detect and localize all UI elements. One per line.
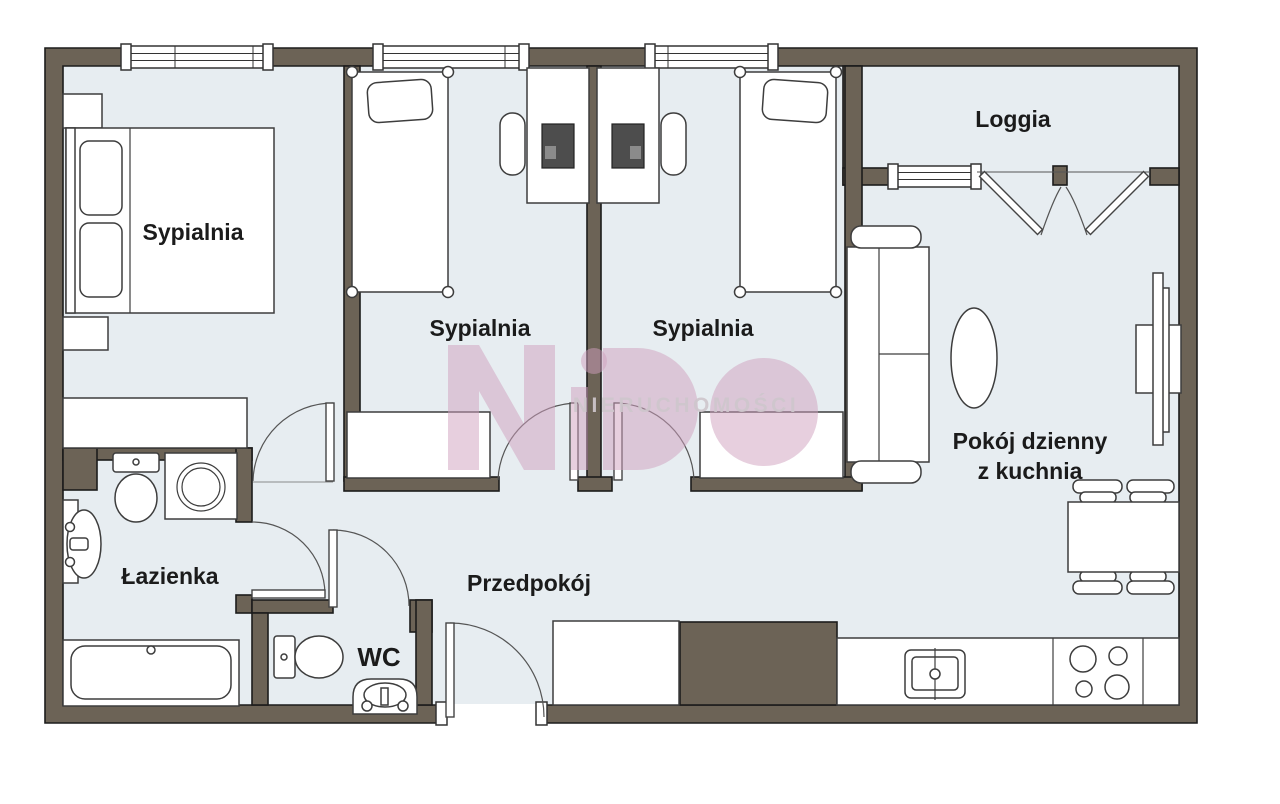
bedrooms-bottom-wall-a [344,477,499,491]
bed-headboard [66,128,75,313]
monitor-stand [545,146,556,159]
window-bedroom1 [121,44,273,70]
toilet-bowl [115,474,157,522]
monitor-stand [630,146,641,159]
bed-post [831,67,842,78]
washbasin-tap [70,538,88,550]
wc-right-wall [416,600,432,705]
bed-post [347,287,358,298]
bathtub-drain [147,646,155,654]
dining-chair [1073,581,1122,594]
stove-burner [1076,681,1092,697]
bed-post [347,67,358,78]
room-label-sypialnia-3: Sypialnia [653,315,754,341]
toilet-button [133,459,139,465]
toilet-button [281,654,287,660]
tap-knob [66,558,75,567]
faucet-knob [930,669,940,679]
window-bedroom2 [373,44,529,70]
room-label-living-line1: Pokój dzienny [953,428,1108,454]
room-label-living-line2: z kuchnia [978,458,1083,484]
sofa-armrest [851,226,921,248]
room-label-sypialnia-2: Sypialnia [430,315,531,341]
bed-post [443,67,454,78]
watermark-text: NIERUCHOMOŚCI [573,393,799,417]
pillow [367,79,434,123]
window-bedroom3 [645,44,778,70]
bathroom-right-wall-lower [236,595,252,613]
pillow [80,223,122,297]
hall-wardrobe [553,621,679,705]
dresser [63,398,247,448]
floor-plan-page: Sypialnia Sypialnia Sypialnia Loggia Pok… [0,0,1280,804]
window-loggia [888,164,981,189]
wc-left-wall [252,613,268,705]
room-label-wc: WC [357,642,401,672]
tv [1153,273,1163,445]
bed-post [443,287,454,298]
dining-chair [1127,581,1174,594]
bedrooms-bottom-wall-b [578,477,612,491]
toilet-bowl [295,636,343,678]
floor-plan-drawing: Sypialnia Sypialnia Sypialnia Loggia Pok… [0,0,1280,804]
nightstand [63,94,102,128]
kitchen-counter [837,638,1179,705]
dining-chair [1127,480,1174,493]
nightstand [63,317,108,350]
wc-tap [381,688,388,705]
room-label-przedpokoj: Przedpokój [467,570,591,596]
room-label-lazienka: Łazienka [121,563,218,589]
bed-post [735,287,746,298]
pillow [762,79,829,123]
office-chair [500,113,525,175]
bed-post [831,287,842,298]
balcony-door-post [1053,166,1067,185]
bed-post [735,67,746,78]
bathroom-corner-pillar [63,448,97,490]
office-chair [661,113,686,175]
built-in-closet-block [680,622,837,705]
bathroom-right-wall-upper [236,448,252,522]
tap-knob [66,523,75,532]
sofa-armrest [851,461,921,483]
room-label-sypialnia-1: Sypialnia [143,219,244,245]
pillow [80,141,122,215]
entrance-opening [443,704,540,724]
entrance-jamb-right [536,702,547,725]
kitchen-furniture [837,638,1179,705]
tap-knob [362,701,372,711]
bedrooms-bottom-wall-c [691,477,862,491]
stove-burner [1109,647,1127,665]
tap-knob [398,701,408,711]
wc-top-wall [252,600,333,613]
room-label-loggia: Loggia [975,106,1051,132]
coffee-table [951,308,997,408]
loggia-bottom-wall-right [1150,168,1179,185]
stove-burner [1105,675,1129,699]
stove-burner [1070,646,1096,672]
hallway-furniture [553,621,679,705]
dining-table [1068,502,1179,572]
